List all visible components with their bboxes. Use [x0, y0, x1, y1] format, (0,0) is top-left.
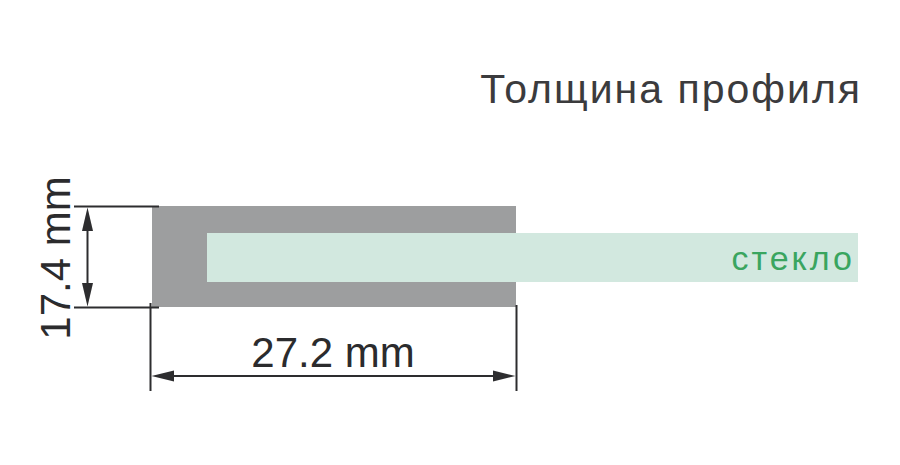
arrow-down-icon: [82, 283, 93, 307]
diagram-title: Толщина профиля: [480, 66, 862, 113]
width-dimension-label: 27.2 mm: [150, 329, 516, 377]
arrow-up-icon: [82, 208, 93, 232]
height-dimension: [74, 207, 159, 308]
height-dimension-label: 17.4 mm: [33, 158, 79, 358]
profile-thickness-diagram: Толщина профиля стекло 17.4 mm 27.2 mm: [0, 0, 900, 465]
glass-label: стекло: [732, 235, 856, 281]
